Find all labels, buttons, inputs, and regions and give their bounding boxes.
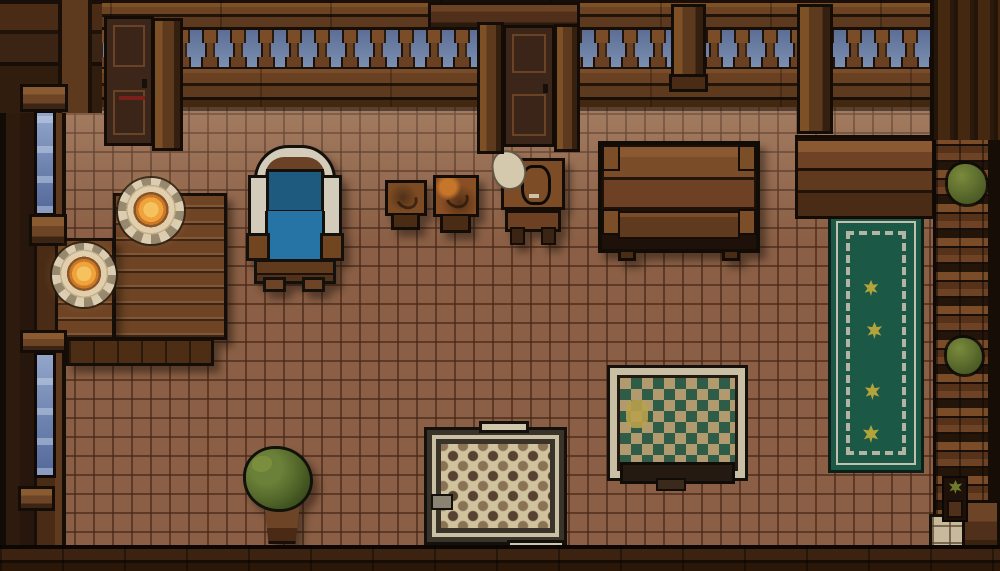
sill-window-lower	[18, 486, 55, 511]
bench-table[interactable]	[598, 141, 760, 253]
nightstand[interactable]	[501, 158, 565, 248]
potted-plant[interactable]	[246, 449, 318, 548]
checker-rug[interactable]	[424, 427, 567, 545]
window-upper	[34, 110, 56, 216]
bench-leg	[618, 249, 636, 261]
post-left-door	[152, 18, 183, 151]
diamond-rug-shadow-bar	[620, 462, 735, 484]
nightstand-drawer	[505, 210, 561, 232]
door-left[interactable]	[104, 16, 154, 146]
post-center-left	[477, 22, 504, 154]
shelf-bush-lower[interactable]	[947, 338, 982, 374]
header-window-lower	[20, 330, 67, 353]
candle-plate-top[interactable]	[118, 178, 184, 244]
door-panel	[512, 34, 546, 73]
plant-foliage	[246, 449, 310, 509]
armchair-seat	[265, 211, 325, 263]
shelf-bush-upper[interactable]	[948, 164, 986, 204]
door-knob	[543, 84, 548, 93]
stool-base	[440, 216, 471, 233]
checker-rug-corner-block	[431, 494, 453, 510]
candle-plate-left[interactable]	[52, 243, 116, 307]
corner-top-right	[930, 0, 1000, 140]
bench-corner-post	[738, 209, 756, 235]
bottom-wall	[0, 545, 1000, 571]
armchair-backrest	[266, 169, 324, 213]
armchair-armrest-right	[320, 233, 344, 261]
checker-rug-tab-top	[479, 421, 529, 433]
bench-corner-post	[738, 145, 756, 171]
ledge-top-left	[20, 84, 68, 112]
bench-corner-post	[602, 145, 620, 171]
stool-base	[391, 215, 420, 230]
door-red-stripe	[119, 96, 145, 100]
post-center-right	[554, 24, 580, 152]
door-panel	[113, 25, 145, 67]
checker-rug-field	[441, 444, 550, 528]
stool-small-left[interactable]	[385, 180, 427, 230]
bench-lower-plank	[618, 211, 740, 239]
game-scene	[0, 0, 1000, 571]
diamond-rug[interactable]	[607, 365, 748, 481]
stool-small-right[interactable]	[433, 175, 479, 233]
window-lower	[34, 352, 56, 478]
dining-bench[interactable]	[66, 338, 214, 366]
door-panel	[512, 94, 546, 136]
small-plant-bottom-right[interactable]	[942, 476, 968, 522]
runner-rug-pattern	[846, 231, 906, 455]
armchair-base	[254, 259, 336, 284]
stool-top	[433, 175, 479, 217]
bench-top-planks	[604, 147, 754, 207]
runner-rug[interactable]	[828, 213, 924, 473]
door-center[interactable]	[503, 25, 555, 147]
armchair-armrest-left	[246, 233, 270, 261]
armchair[interactable]	[248, 145, 342, 292]
post-mid-right	[671, 4, 706, 84]
diamond-rug-patch	[626, 400, 648, 428]
right-counter[interactable]	[795, 135, 935, 219]
bench-leg	[722, 249, 740, 261]
post-far-right	[797, 4, 833, 134]
stool-top	[385, 180, 427, 216]
door-knob	[142, 79, 147, 88]
